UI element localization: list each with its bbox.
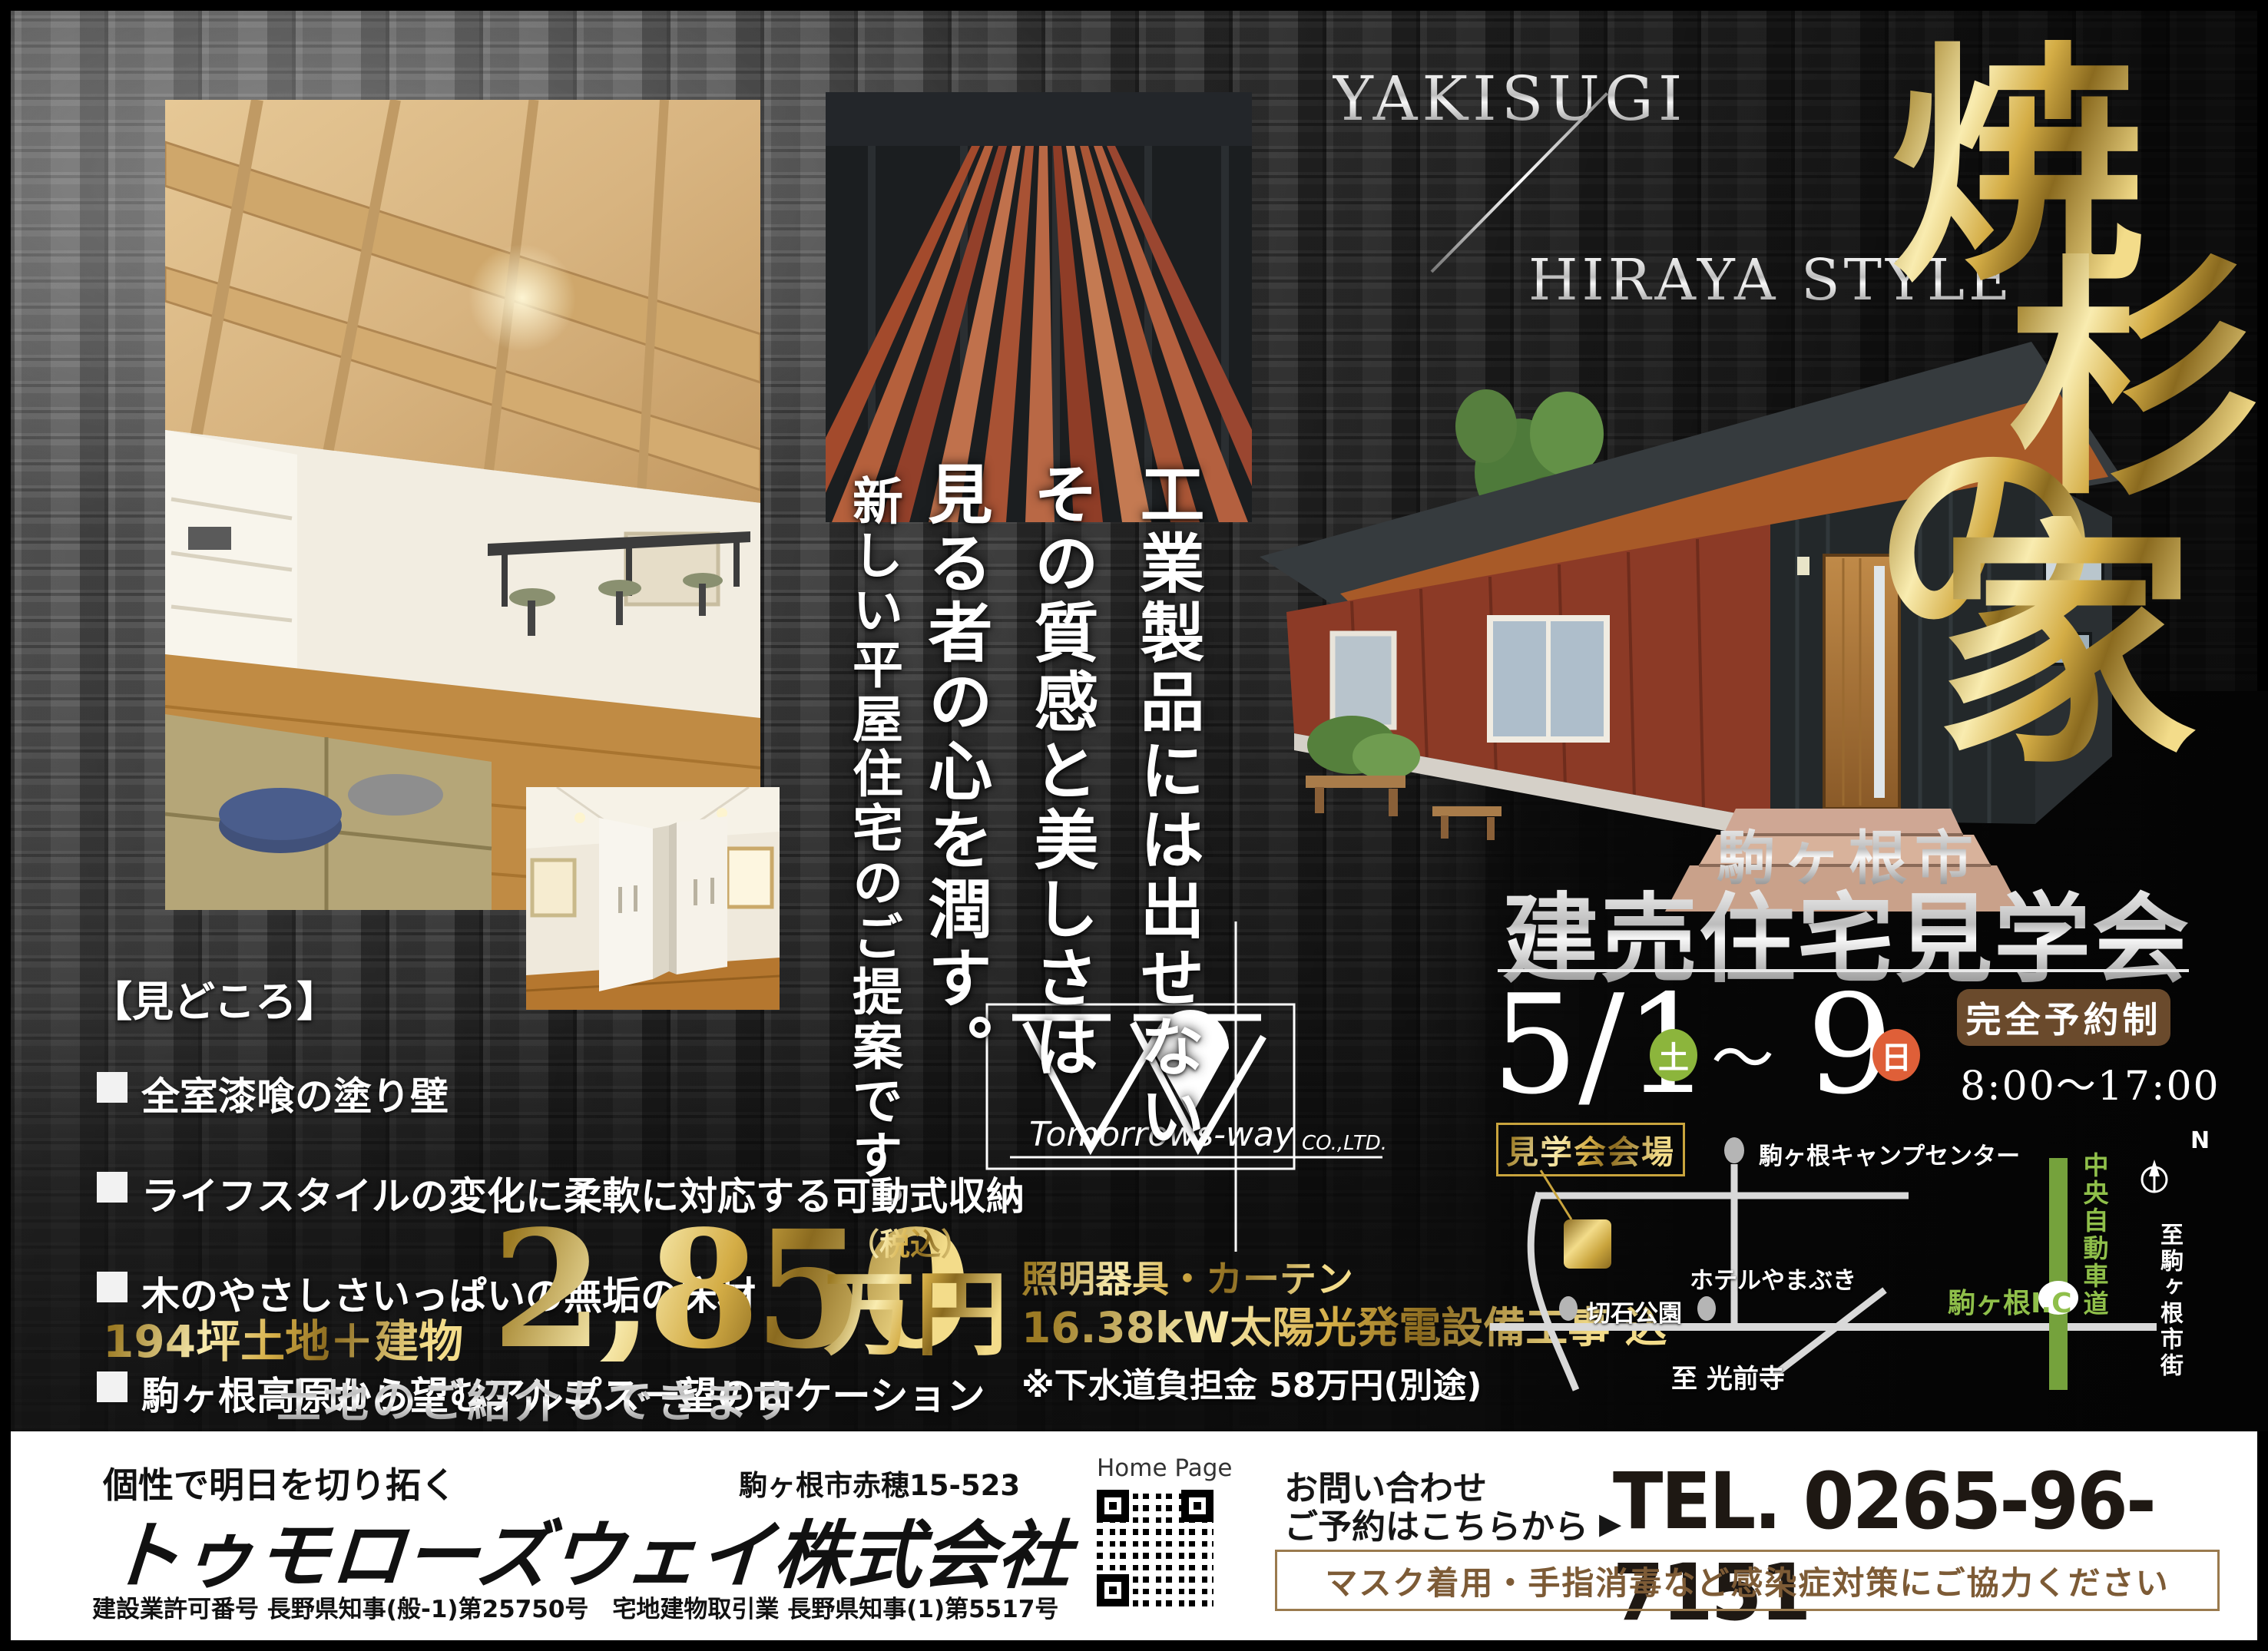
square-bullet-icon [97, 1272, 127, 1302]
tagline-line-4: 新しい平屋住宅のご提案です。 [837, 475, 911, 1238]
reservation-box: 完全予約制 [1957, 989, 2170, 1046]
closet-illustration [526, 787, 780, 1010]
license-numbers: 建設業許可番号 長野県知事(般-1)第25750号 宅地建物取引業 長野県知事(… [92, 1590, 1058, 1624]
contact-line-2: ご予約はこちらから ▶ [1284, 1499, 1621, 1548]
qr-finder-icon [1097, 1574, 1129, 1606]
venue-label: 見学会会場 [1506, 1127, 1675, 1173]
map-city-direction-label: 至駒ヶ根市街 [2152, 1223, 2186, 1379]
covid-notice-box: マスク着用・手指消毒など感染症対策にご協力ください [1275, 1550, 2220, 1611]
square-bullet-icon [97, 1371, 127, 1402]
square-bullet-icon [97, 1172, 127, 1203]
price-tax-note: （税込） [849, 1219, 972, 1264]
footer-band: 個性で明日を切り拓く トゥモローズウェイ株式会社 建設業許可番号 長野県知事(般… [11, 1431, 2257, 1640]
logo-suffix-text: CO.,LTD. [1302, 1132, 1387, 1155]
price-sewer-note: ※下水道負担金 58万円(別途) [1021, 1358, 1482, 1407]
map-road-diagonal [1773, 1290, 1885, 1376]
brand-yakisugi: YAKISUGI [1333, 63, 1687, 134]
qr-code [1091, 1484, 1220, 1613]
venue-label-box: 見学会会場 [1496, 1123, 1685, 1176]
covid-notice-text: マスク着用・手指消毒など感染症対策にご協力ください [1325, 1557, 2169, 1604]
event-day-sat-badge: 土 [1650, 1029, 1697, 1081]
tagline-line-1: 工業製品には出せない [1121, 461, 1214, 1152]
event-hours: 8:00～17:00 [1960, 1054, 2220, 1111]
map-ic-label: 駒ヶ根I.C [1948, 1281, 2072, 1321]
company-name: トゥモローズウェイ株式会社 [104, 1496, 1076, 1603]
map-hotel-dot [1697, 1296, 1716, 1321]
map-park-label: 切石公園 [1587, 1294, 1682, 1328]
map-north-label: N [2190, 1127, 2210, 1154]
tagline-line-3: 見る者の心を潤す。 [909, 461, 1002, 1083]
compass-icon [2142, 1160, 2167, 1192]
map-camp-label: 駒ヶ根キャンプセンター [1759, 1137, 2020, 1171]
map-camp-dot [1724, 1137, 1744, 1163]
title-char-ie: 家 [1935, 516, 2197, 777]
price-unit: 万円 [823, 1269, 1008, 1361]
event-day-sun-badge: 日 [1872, 1029, 1920, 1081]
flyer-root: YAKISUGI HIRAYA STYLE 焼 杉 の 家 工業製品には出せない… [0, 0, 2268, 1651]
highlight-item: 全室漆喰の塗り壁 [97, 1066, 449, 1121]
square-bullet-icon [97, 1072, 127, 1103]
company-address: 駒ヶ根市赤穂15-523 [739, 1462, 1020, 1504]
price-land-label: 194坪土地＋建物 [103, 1305, 463, 1370]
contact-line-2-text: ご予約はこちらから [1284, 1499, 1588, 1548]
slats-illustration [826, 92, 1252, 522]
map-temple-label: 至 光前寺 [1671, 1358, 1785, 1395]
highlights-heading: 【見どころ】 [91, 968, 338, 1028]
event-date-tilde: ～ [1711, 1007, 1774, 1099]
qr-finder-icon [1097, 1490, 1129, 1522]
photo-movable-storage [526, 787, 780, 1010]
tagline-line-2: その質感と美しさは [1015, 461, 1108, 1083]
highlight-label: 全室漆喰の塗り壁 [141, 1066, 449, 1121]
homepage-label: Home Page [1097, 1454, 1232, 1482]
map-hotel-label: ホテルやまぶき [1690, 1261, 1856, 1295]
map-park-dot [1559, 1296, 1578, 1321]
map-highway-label: 中央自動車道 [2075, 1152, 2112, 1318]
land-intro-note: 土地のご紹介もできます [276, 1365, 799, 1430]
photo-yakisugi-slats [826, 92, 1252, 522]
phone-number: TEL. 0265-96-7151 [1613, 1456, 2219, 1639]
venue-marker-icon [1564, 1219, 1611, 1269]
reservation-label: 完全予約制 [1966, 992, 2162, 1043]
qr-finder-icon [1181, 1490, 1213, 1522]
